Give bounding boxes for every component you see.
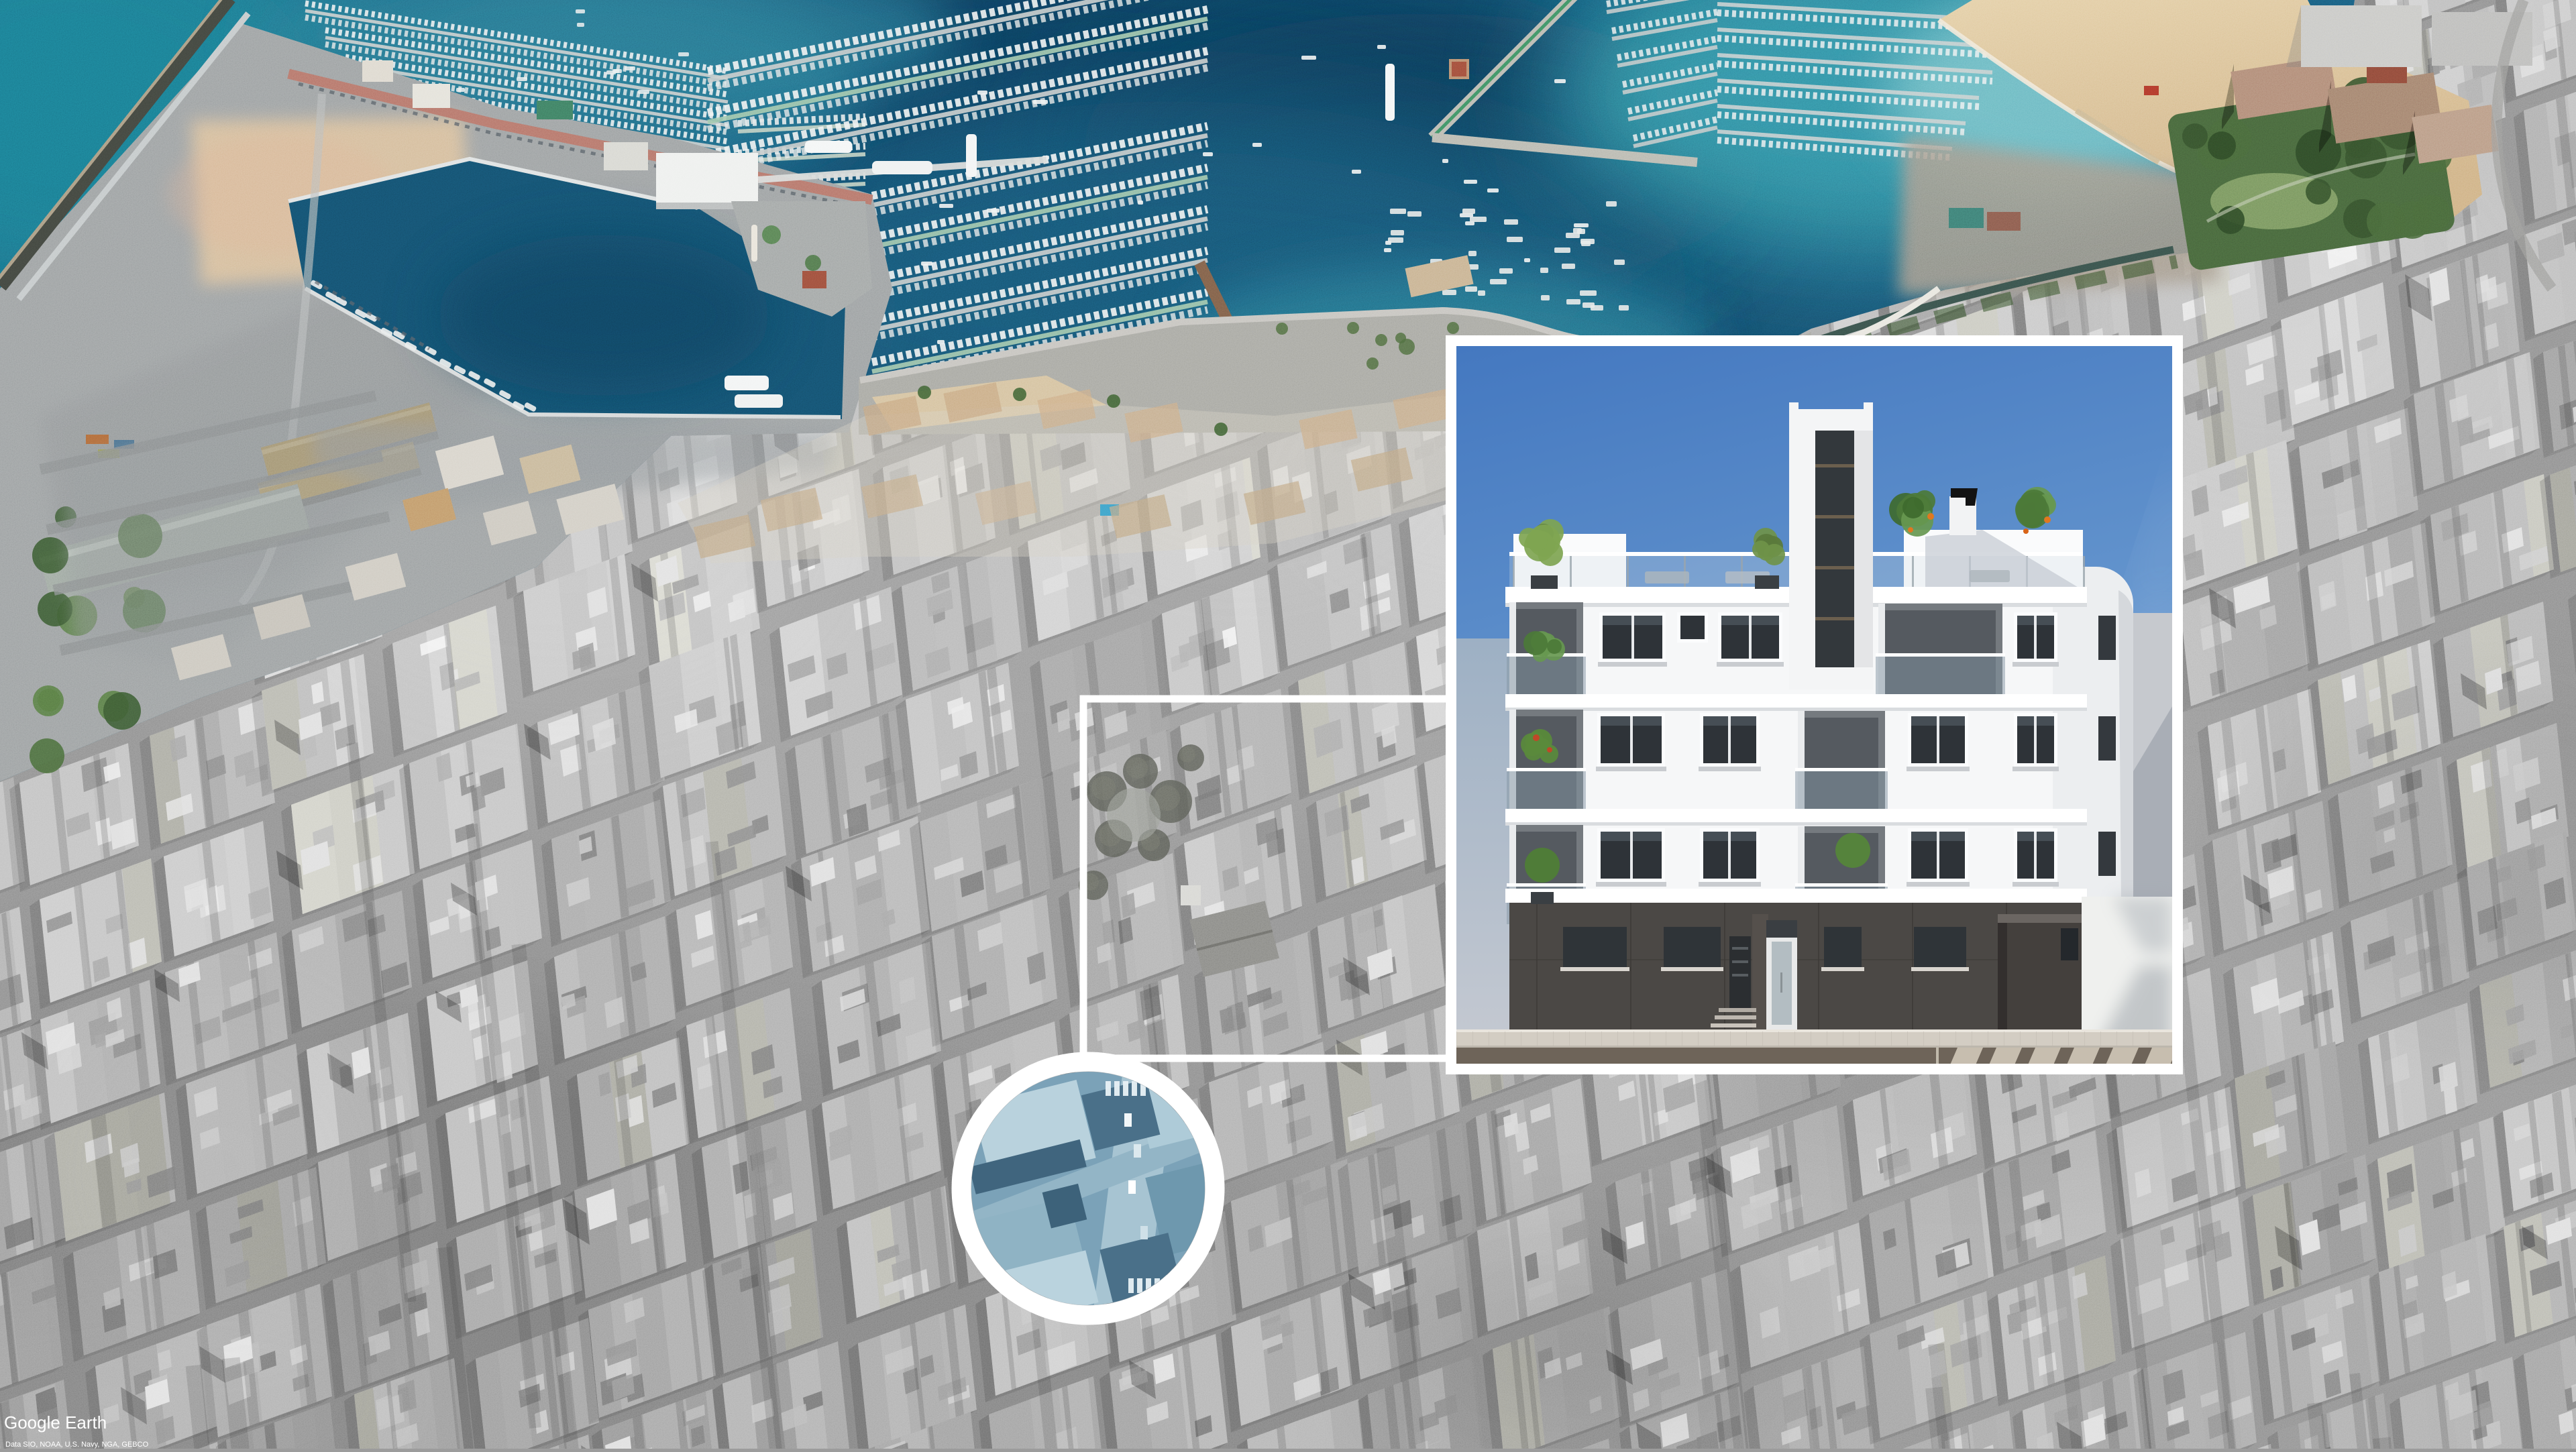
svg-text:Google Earth: Google Earth	[4, 1412, 107, 1433]
svg-text:Data SIO, NOAA, U.S. Navy, NGA: Data SIO, NOAA, U.S. Navy, NGA, GEBCO	[5, 1441, 149, 1449]
